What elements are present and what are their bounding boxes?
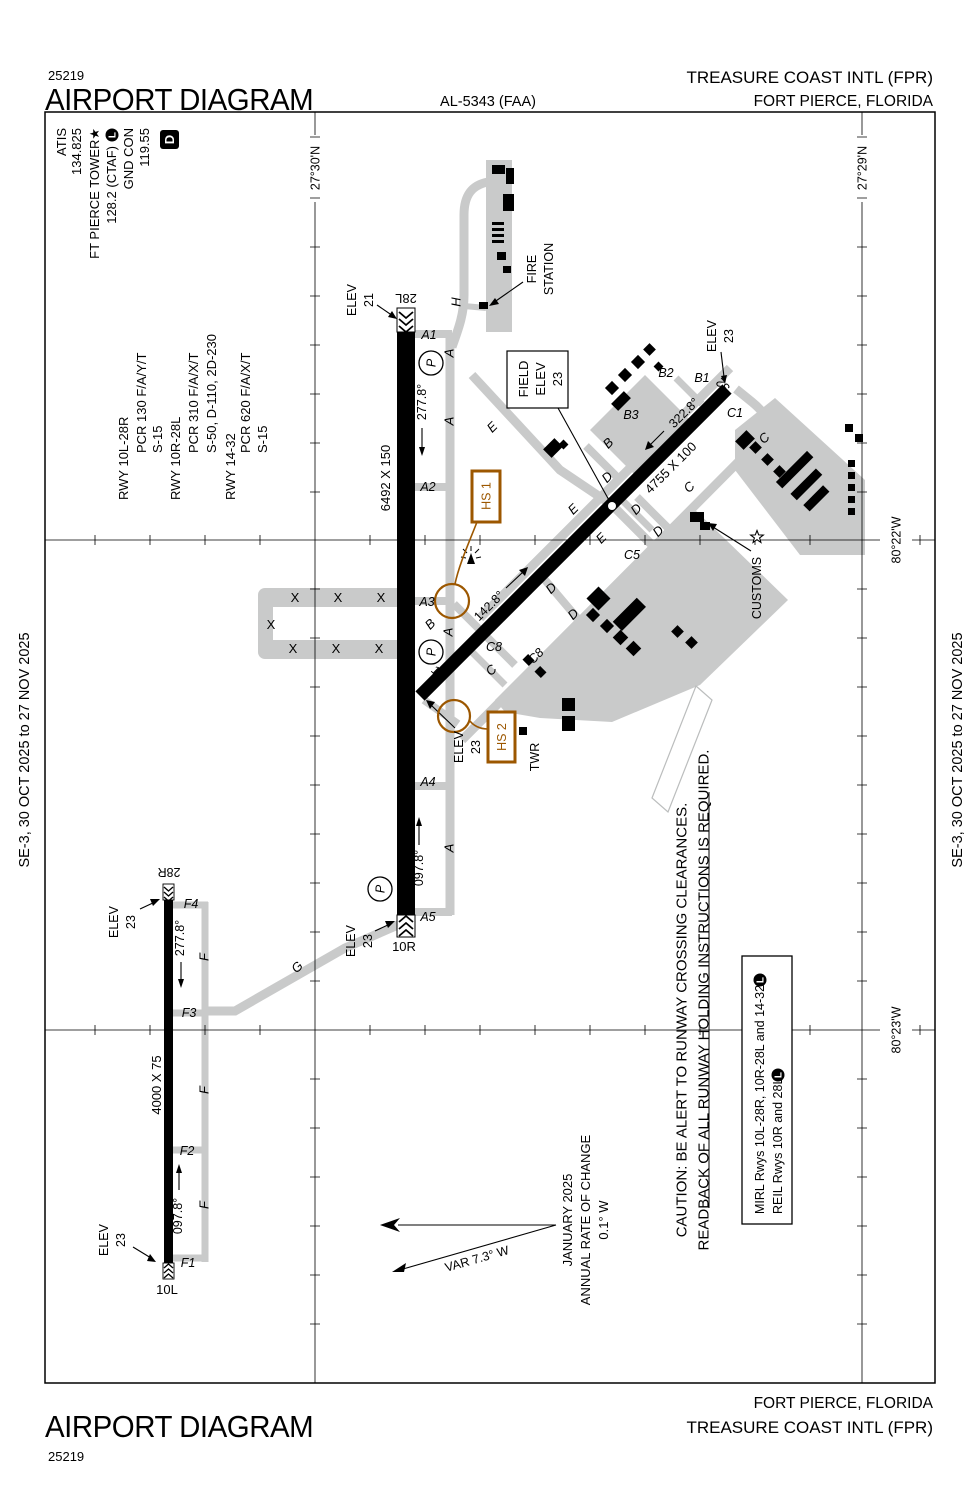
chart-reference: AL-5343 (FAA)	[440, 94, 536, 110]
closed-taxiway-x: X	[332, 641, 341, 656]
building	[848, 472, 855, 479]
heading-097-main: 097.8°	[412, 850, 426, 886]
elev-label-10r: ELEV	[344, 924, 358, 957]
beacon-tower	[467, 553, 475, 564]
building	[492, 228, 504, 231]
rwy-data-1-s: S-15	[150, 426, 165, 453]
runway-small-dimensions: 4000 X 75	[149, 1055, 164, 1114]
runway-end-10r: 10R	[392, 939, 416, 954]
arrowhead	[147, 1254, 156, 1262]
taxiway-label-f: F	[197, 1200, 212, 1209]
tower-label: FT PIERCE TOWER★	[87, 128, 102, 259]
elev-value-10r: 23	[361, 934, 375, 948]
taxiway-label-e: E	[484, 418, 501, 435]
variation-rate-label: ANNUAL RATE OF CHANGE	[578, 1134, 593, 1305]
rwy-data-2-s: S-50, D-110, 2D-230	[204, 334, 219, 453]
building	[562, 716, 575, 731]
rwy-data-2-pcr: PCR 310 F/A/X/T	[186, 353, 201, 453]
airport-name-bottom: TREASURE COAST INTL (FPR)	[686, 1418, 933, 1437]
taxiway-label-f3: F3	[182, 1006, 197, 1020]
building	[503, 266, 511, 273]
latitude-label-1: 27°30'N	[309, 146, 323, 190]
displaced-threshold-10r	[397, 915, 415, 937]
tower-signal-l: L	[108, 132, 119, 138]
building	[855, 434, 863, 442]
hotspot-1-leader	[455, 522, 477, 584]
datis-symbol: D	[162, 135, 177, 144]
elev-label-10l: ELEV	[97, 1223, 111, 1256]
field-elev-word2: ELEV	[533, 362, 548, 396]
elev-value-28l: 21	[362, 293, 376, 307]
building	[492, 234, 504, 237]
closed-taxiway-x: X	[377, 590, 386, 605]
arrowhead	[178, 979, 184, 988]
variation-rate-value: 0.1° W	[596, 1200, 611, 1240]
longitude-label-2: 80°23'W	[890, 1006, 904, 1053]
north-apron	[486, 160, 512, 332]
latitude-label-2: 27°29'N	[856, 146, 870, 190]
building	[506, 168, 514, 184]
field-elev-word1: FIELD	[516, 361, 531, 398]
chart-code-bottom: 25219	[48, 1449, 84, 1464]
elev-value-28r: 23	[124, 915, 138, 929]
taxiway-label-b: B	[422, 615, 439, 632]
elev-value-14: 23	[469, 740, 483, 754]
longitude-label-1: 80°22'W	[890, 516, 904, 563]
airport-diagram-chart: 25219 AIRPORT DIAGRAM AL-5343 (FAA) TREA…	[0, 0, 978, 1500]
page-title-bottom: AIRPORT DIAGRAM	[45, 1410, 313, 1444]
threshold-box	[397, 915, 415, 937]
heading-097-small: 097.8°	[171, 1198, 185, 1234]
arrowhead	[388, 311, 397, 319]
displaced-threshold-28l	[397, 308, 415, 332]
building	[848, 484, 855, 491]
lighting-line-2: REIL Rwys 10R and 28L	[771, 1078, 785, 1214]
taxiway-label-e: E	[593, 529, 610, 546]
taxiway-label-a: A	[442, 349, 457, 359]
building	[631, 355, 645, 369]
building	[845, 424, 853, 432]
fire-station-building	[479, 302, 488, 309]
taxiway-label-c5: C5	[624, 548, 640, 562]
caution-line-1: CAUTION: BE ALERT TO RUNWAY CROSSING CLE…	[674, 803, 691, 1238]
elev-value-10l: 23	[114, 1233, 128, 1247]
chart-code-top: 25219	[48, 68, 84, 83]
atis-frequency: 134.825	[69, 128, 84, 175]
taxiway-label-a5: A5	[419, 910, 435, 924]
customs-building	[690, 512, 704, 522]
taxiway-label-a2: A2	[419, 480, 435, 494]
rwy-data-2: RWY 10R-28L	[168, 417, 183, 500]
rwy-data-1: RWY 10L-28R	[116, 417, 131, 500]
rwy-data-3-pcr: PCR 620 F/A/X/T	[238, 353, 253, 453]
taxiway-label-f4: F4	[184, 897, 199, 911]
rwy-data-3: RWY 14-32	[223, 433, 238, 500]
ground-frequency: 119.55	[137, 128, 152, 167]
taxiway-label-f: F	[197, 1085, 212, 1094]
atis-label: ATIS	[54, 128, 69, 156]
taxiway-label-c: C	[680, 478, 698, 496]
closed-taxiway-x: X	[291, 590, 300, 605]
building	[497, 252, 506, 260]
taxiway-label-a: A	[442, 844, 457, 854]
airport-city-top: FORT PIERCE, FLORIDA	[754, 93, 934, 110]
heading-277-small: 277.8°	[173, 920, 187, 956]
lighting-signal-l: L	[756, 977, 767, 983]
taxiway-label-a3: A3	[418, 595, 434, 609]
runway-10r-28l	[397, 332, 415, 915]
building	[492, 165, 505, 174]
margin-note-right: SE-3, 30 OCT 2025 to 27 NOV 2025	[950, 632, 966, 867]
arrowhead	[416, 817, 422, 826]
arrowhead	[150, 899, 160, 906]
variation-date: JANUARY 2025	[560, 1174, 575, 1267]
fire-station-label-2: STATION	[542, 243, 556, 295]
airport-diagram-page: 25219 AIRPORT DIAGRAM AL-5343 (FAA) TREA…	[0, 0, 978, 1500]
runway-end-28r: 28R	[158, 865, 181, 879]
taxiway-label-a: A	[441, 628, 456, 638]
building	[605, 381, 619, 395]
taxiway-label-a1: A1	[420, 328, 436, 342]
elev-label-14: ELEV	[452, 730, 466, 763]
caution-line-2: READBACK OF ALL RUNWAY HOLDING INSTRUCTI…	[696, 750, 713, 1251]
pavement-layer	[106, 129, 864, 1280]
building	[562, 698, 575, 711]
building	[492, 222, 504, 225]
ground-label: GND CON	[121, 128, 136, 189]
taxiway-label-c1: C1	[727, 406, 743, 420]
field-elev-value: 23	[550, 372, 565, 386]
lighting-line-1: MIRL Rwys 10L-28R, 10R-28L and 14-32	[753, 985, 767, 1214]
lighting-signal-l: L	[774, 1072, 785, 1078]
elev-value-32: 23	[722, 329, 736, 343]
displaced-threshold-28r	[163, 884, 174, 901]
building	[618, 368, 632, 382]
magnetic-var-arrowhead-icon	[392, 1263, 406, 1272]
parking-symbol: P	[425, 647, 439, 656]
taxiway-label-a: A	[442, 417, 457, 427]
displaced-threshold-10l	[163, 1263, 174, 1279]
parking-symbol: P	[374, 884, 388, 893]
hotspot-1-label: HS 1	[480, 482, 494, 510]
taxiway-label-f: F	[197, 952, 212, 961]
runway-main-dimensions: 6492 X 150	[378, 445, 393, 512]
elev-label-28l: ELEV	[345, 283, 359, 316]
east-apron	[735, 398, 865, 555]
building	[848, 508, 855, 515]
arrow-line	[133, 1247, 151, 1258]
elev-label-28r: ELEV	[107, 905, 121, 938]
taxiway-label-f1: F1	[181, 1256, 196, 1270]
airport-city-bottom: FORT PIERCE, FLORIDA	[754, 1395, 934, 1412]
rwy-data-3-s: S-15	[255, 426, 270, 453]
building	[492, 240, 504, 243]
building	[503, 194, 514, 211]
building	[848, 496, 855, 503]
runway-end-28l: 28L	[395, 291, 417, 306]
parking-symbol: P	[425, 358, 439, 367]
tower-label-map: TWR	[528, 743, 542, 771]
hotspot-2-label: HS 2	[495, 723, 509, 751]
margin-note-left: SE-3, 30 OCT 2025 to 27 NOV 2025	[17, 632, 33, 867]
closed-taxiway-x: X	[267, 617, 276, 632]
tower-building	[519, 727, 527, 735]
customs-label: CUSTOMS	[750, 557, 764, 619]
fire-station-label-1: FIRE	[525, 255, 539, 283]
building	[643, 343, 656, 356]
taxiway-label-c8: C8	[486, 640, 502, 654]
closed-taxiway-x: X	[375, 641, 384, 656]
taxiway-label-b1: B1	[694, 371, 709, 385]
taxiway-label-h: H	[449, 297, 464, 307]
closed-taxiway-x: X	[334, 590, 343, 605]
elev-label-32: ELEV	[705, 319, 719, 352]
taxiway-label-f2: F2	[180, 1144, 195, 1158]
closed-taxiway-x: X	[289, 641, 298, 656]
customs-star-icon	[751, 531, 764, 543]
runway-end-10l: 10L	[156, 1282, 178, 1297]
tower-frequency: 128.2 (CTAF)	[104, 146, 119, 224]
taxiway-label-b2: B2	[658, 366, 673, 380]
airport-name-top: TREASURE COAST INTL (FPR)	[686, 68, 933, 87]
north-arrowhead-icon	[380, 1218, 400, 1232]
page-title: AIRPORT DIAGRAM	[45, 83, 313, 117]
arrowhead	[176, 1164, 182, 1173]
field-elev-dot	[608, 502, 616, 510]
rwy-data-1-pcr: PCR 130 F/A/Y/T	[134, 353, 149, 453]
taxiway-label-a4: A4	[419, 775, 435, 789]
building	[848, 460, 855, 467]
arrowhead	[419, 447, 425, 456]
taxiway-label-b3: B3	[623, 408, 638, 422]
heading-277-main: 277.8°	[415, 384, 429, 420]
